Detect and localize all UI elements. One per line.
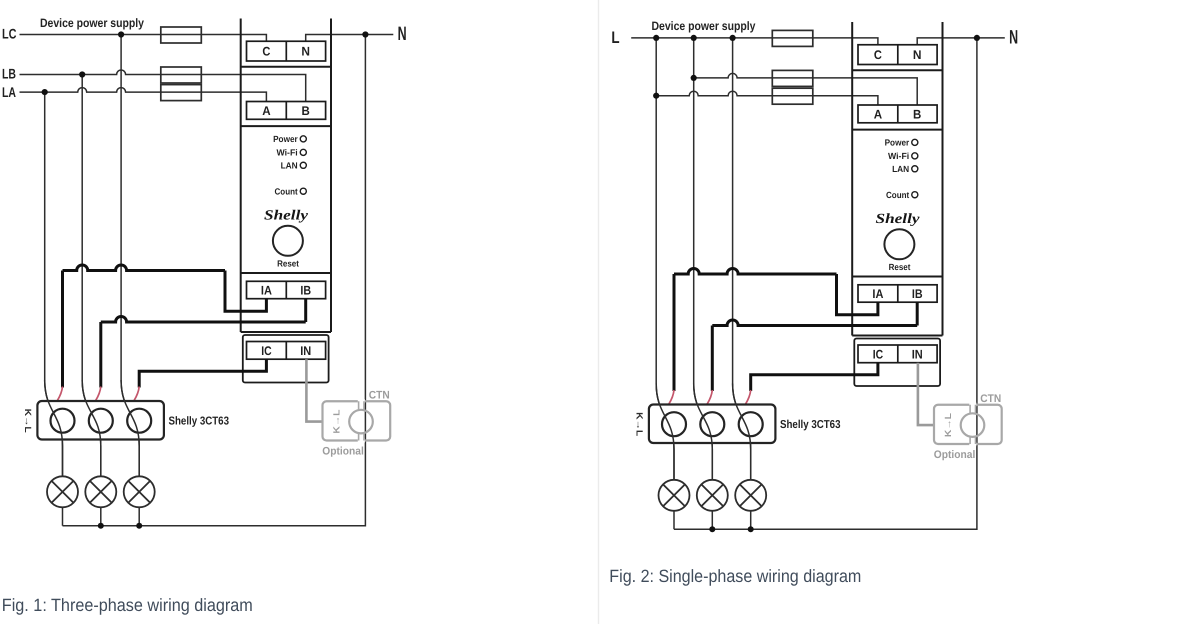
svg-text:IA: IA	[872, 287, 883, 301]
svg-text:IB: IB	[300, 283, 311, 297]
svg-text:Shelly: Shelly	[876, 212, 921, 227]
svg-text:LA: LA	[2, 84, 16, 100]
svg-text:Power: Power	[273, 134, 298, 144]
svg-text:Fig. 2: Single-phase wiring di: Fig. 2: Single-phase wiring diagram	[609, 566, 861, 586]
svg-text:K→L: K→L	[23, 409, 33, 434]
svg-text:K→L: K→L	[635, 412, 645, 437]
svg-text:Fig. 1: Three-phase wiring dia: Fig. 1: Three-phase wiring diagram	[2, 595, 253, 615]
svg-text:LC: LC	[2, 26, 17, 42]
svg-text:N: N	[1009, 26, 1018, 48]
svg-text:CTN: CTN	[369, 390, 390, 402]
svg-text:Count: Count	[886, 190, 909, 200]
svg-text:C: C	[874, 48, 882, 62]
svg-text:Device power supply: Device power supply	[652, 19, 756, 33]
svg-text:Count: Count	[275, 186, 298, 196]
svg-text:CTN: CTN	[980, 393, 1001, 405]
svg-text:IB: IB	[912, 287, 923, 301]
svg-text:L: L	[611, 28, 619, 47]
svg-text:Shelly 3CT63: Shelly 3CT63	[169, 415, 230, 427]
svg-text:LAN: LAN	[892, 164, 909, 174]
svg-text:N: N	[301, 45, 310, 59]
svg-text:IA: IA	[261, 283, 272, 297]
svg-text:Device power supply: Device power supply	[40, 16, 144, 30]
svg-text:LB: LB	[2, 66, 16, 82]
svg-text:N: N	[398, 23, 407, 45]
svg-text:Optional: Optional	[934, 449, 976, 461]
svg-text:IN: IN	[912, 347, 923, 361]
svg-text:N: N	[913, 48, 922, 62]
svg-text:Shelly: Shelly	[264, 209, 309, 224]
svg-text:A: A	[262, 104, 270, 118]
svg-text:IN: IN	[300, 344, 311, 358]
svg-text:Wi-Fi: Wi-Fi	[277, 148, 298, 158]
svg-text:K→L: K→L	[332, 409, 342, 434]
svg-text:IC: IC	[261, 344, 271, 358]
svg-text:Power: Power	[885, 138, 910, 148]
svg-text:IC: IC	[873, 347, 883, 361]
svg-text:C: C	[262, 45, 270, 59]
svg-text:Reset: Reset	[889, 262, 911, 272]
svg-text:A: A	[874, 107, 882, 121]
svg-text:Optional: Optional	[322, 446, 364, 458]
svg-text:LAN: LAN	[281, 160, 298, 170]
svg-text:B: B	[302, 104, 310, 118]
svg-text:B: B	[913, 107, 921, 121]
svg-text:K→L: K→L	[943, 413, 953, 438]
svg-text:Wi-Fi: Wi-Fi	[888, 151, 909, 161]
svg-text:Shelly 3CT63: Shelly 3CT63	[780, 419, 841, 431]
svg-text:Reset: Reset	[277, 259, 299, 269]
